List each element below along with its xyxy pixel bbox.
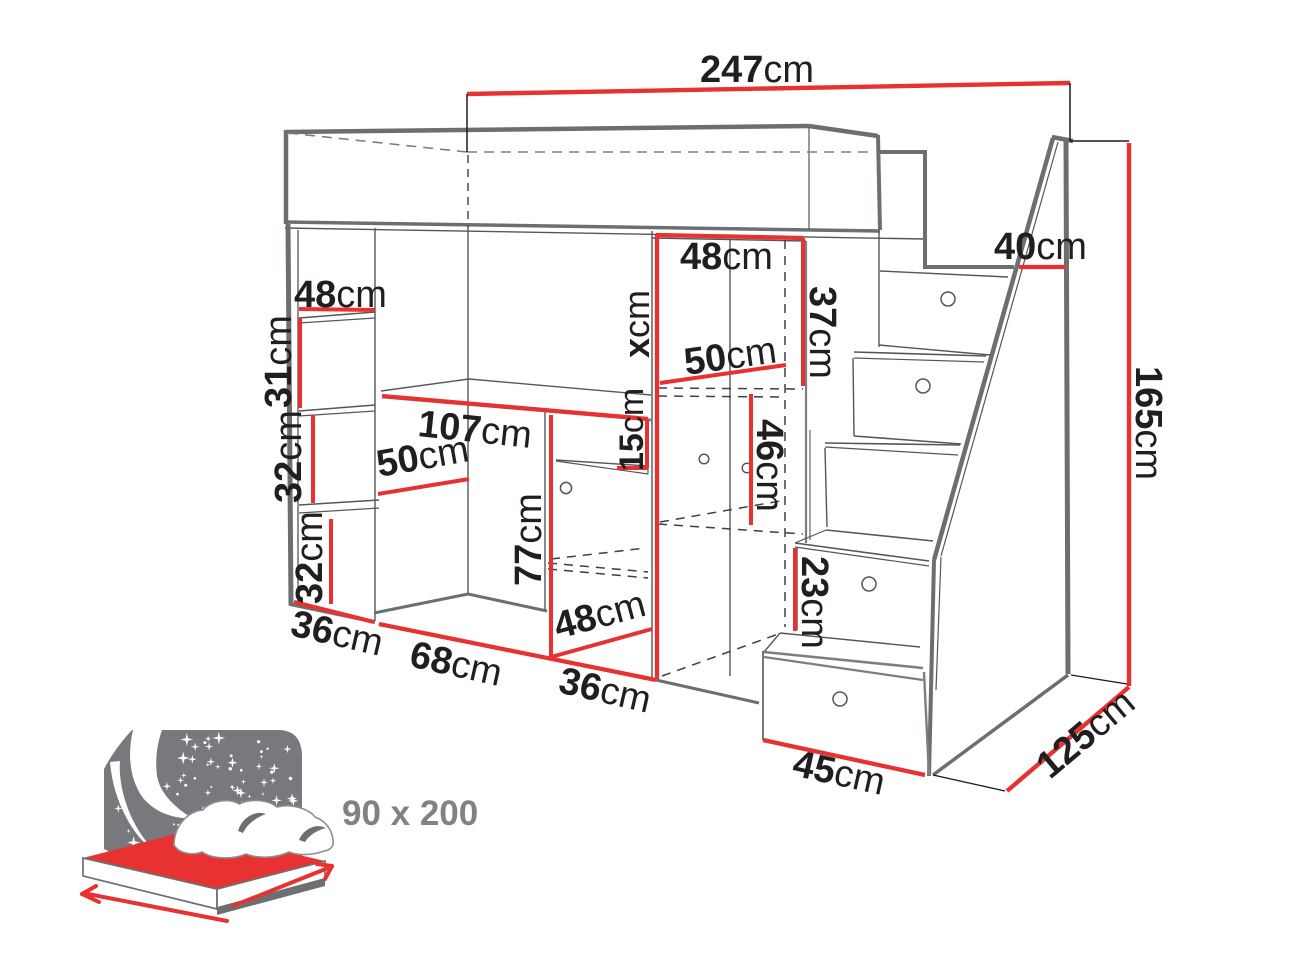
svg-text:48cm: 48cm: [294, 274, 387, 316]
svg-text:165cm: 165cm: [1127, 366, 1169, 480]
svg-text:48cm: 48cm: [680, 236, 773, 278]
svg-text:46cm: 46cm: [748, 419, 790, 512]
svg-text:77cm: 77cm: [508, 493, 550, 586]
svg-text:37cm: 37cm: [801, 286, 843, 379]
svg-text:90 x 200: 90 x 200: [342, 794, 478, 833]
svg-text:23cm: 23cm: [793, 556, 835, 649]
svg-text:32cm: 32cm: [289, 511, 331, 604]
svg-text:247cm: 247cm: [700, 49, 814, 91]
svg-text:xcm: xcm: [616, 290, 657, 358]
svg-text:32cm: 32cm: [268, 410, 310, 503]
svg-text:15cm: 15cm: [613, 388, 651, 471]
svg-text:40cm: 40cm: [994, 226, 1087, 268]
svg-text:31cm: 31cm: [258, 315, 300, 408]
